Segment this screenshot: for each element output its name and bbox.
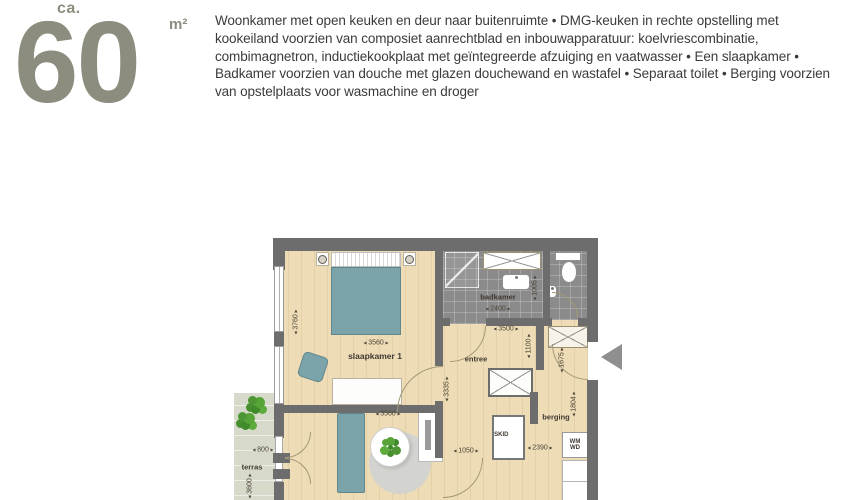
wall-segment <box>536 326 544 370</box>
wall-segment <box>274 482 284 500</box>
dim-storage-depth: 1804 <box>571 392 578 417</box>
dim-storage-width: 2390 <box>528 445 553 452</box>
lamp-icon <box>405 255 414 264</box>
dim-living-width: 3560 <box>376 411 401 418</box>
dim-terrace-height: 3600 <box>247 474 254 499</box>
window <box>274 266 284 332</box>
dim-bathroom-depth: 1005 <box>532 276 539 301</box>
window <box>274 346 284 404</box>
sofa <box>337 413 365 493</box>
bed <box>331 267 401 335</box>
washer-dryer-unit: WM WD <box>562 432 588 458</box>
room-label-terrace: terras <box>242 463 263 471</box>
plant-icon <box>388 445 393 450</box>
room-label-bathroom: badkamer <box>480 293 515 301</box>
toilet-cistern <box>555 252 581 261</box>
skid-unit: SKID <box>492 415 525 460</box>
description-text: Woonkamer met open keuken en deur naar b… <box>215 12 843 101</box>
dim-closet-height: 1675 <box>559 348 566 373</box>
dim-terrace-width: 800 <box>252 447 273 454</box>
bed-pillows <box>331 252 401 267</box>
wall-segment <box>435 251 443 366</box>
area-unit: m² <box>169 16 187 33</box>
shaft <box>488 368 533 397</box>
dryer-label: WD <box>570 445 580 451</box>
room-label-bedroom: slaapkamer 1 <box>348 352 402 361</box>
bush-icon <box>238 412 247 421</box>
shower <box>445 252 479 288</box>
dim-bedroom-width: 3560 <box>364 340 389 347</box>
dim-hall-width: 3500 <box>494 326 519 333</box>
dim-hall-height: 3335 <box>444 377 451 402</box>
bathroom-cabinet <box>483 252 541 270</box>
wall-segment <box>578 318 588 326</box>
room-label-storage: berging <box>542 413 570 421</box>
wall-segment <box>543 251 550 318</box>
wall-segment <box>530 392 538 424</box>
entrance-arrow-icon <box>601 344 622 370</box>
brochure-page: ca. 60 m² Woonkamer met open keuken en d… <box>0 0 850 500</box>
lamp-icon <box>318 255 327 264</box>
tv-icon <box>425 420 431 450</box>
toilet-bowl <box>561 261 577 283</box>
room-label-hall: entree <box>465 355 488 363</box>
dim-hall-depth: 1100 <box>526 334 533 358</box>
wall-segment <box>273 238 598 251</box>
area-block: ca. 60 m² <box>14 0 224 140</box>
washbasin <box>502 274 530 290</box>
dim-door-width: 1050 <box>454 448 479 455</box>
wall-segment <box>435 413 443 458</box>
bush-icon <box>248 396 257 405</box>
dim-bedroom-height: 3760 <box>293 310 300 335</box>
wall-segment <box>274 332 284 346</box>
wall-segment <box>435 318 450 326</box>
skid-label: SKID <box>494 432 508 438</box>
area-value: 60 <box>14 4 139 120</box>
wall-segment <box>543 318 552 326</box>
kitchen-cabinet <box>562 460 588 500</box>
dim-bathroom-width: 2400 <box>486 306 511 313</box>
dresser <box>332 378 402 405</box>
wall-segment <box>274 404 284 438</box>
wall-segment <box>587 238 598 342</box>
floorplan: SKID WM WD <box>230 236 630 500</box>
wall-segment <box>587 380 598 500</box>
terrace-floor <box>232 391 276 500</box>
